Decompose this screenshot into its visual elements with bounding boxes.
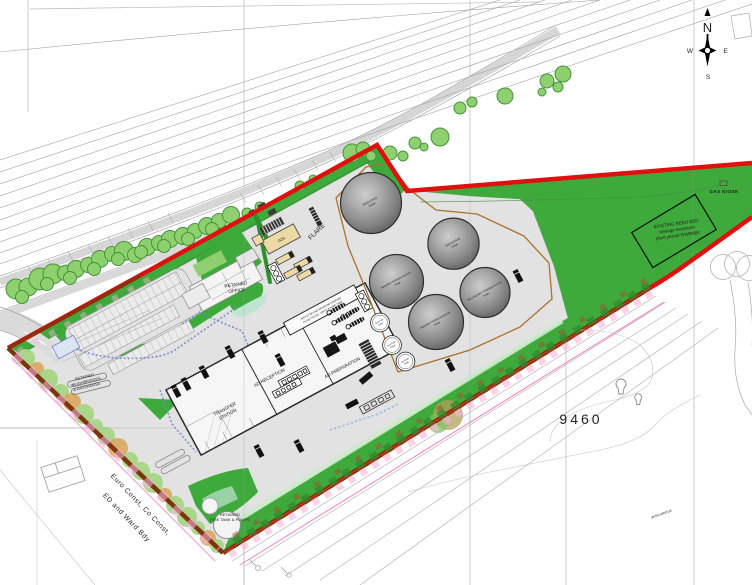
svg-text:GAS KIOSK: GAS KIOSK (709, 189, 739, 195)
svg-text:S: S (706, 74, 711, 81)
svg-text:N: N (703, 20, 712, 35)
svg-text:9460: 9460 (559, 411, 602, 427)
svg-text:W: W (687, 48, 694, 55)
svg-text:E: E (723, 48, 728, 55)
